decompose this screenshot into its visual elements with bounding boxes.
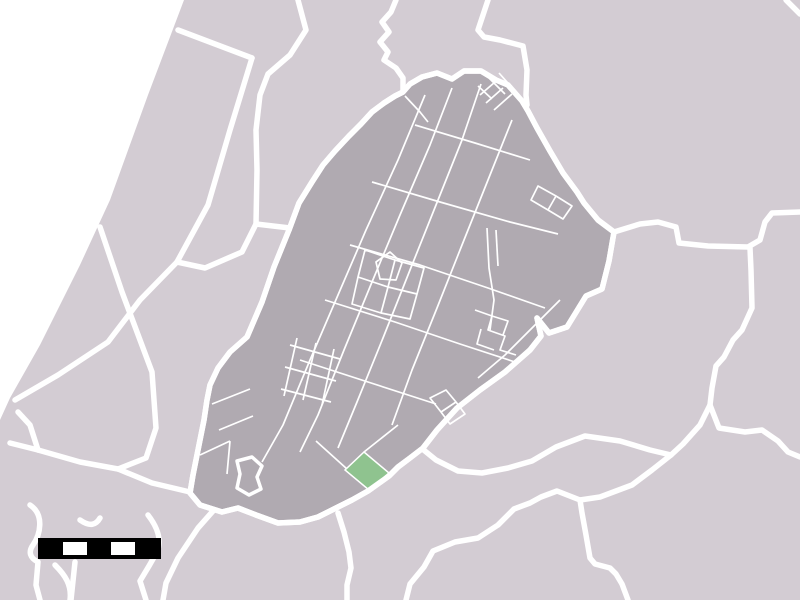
map-canvas [0,0,800,600]
municipality-locator-map [0,0,800,600]
scale-bar-segment [111,542,135,555]
scale-bar [38,538,161,559]
scale-bar-segment [63,542,87,555]
scale-bar-background [38,538,161,559]
